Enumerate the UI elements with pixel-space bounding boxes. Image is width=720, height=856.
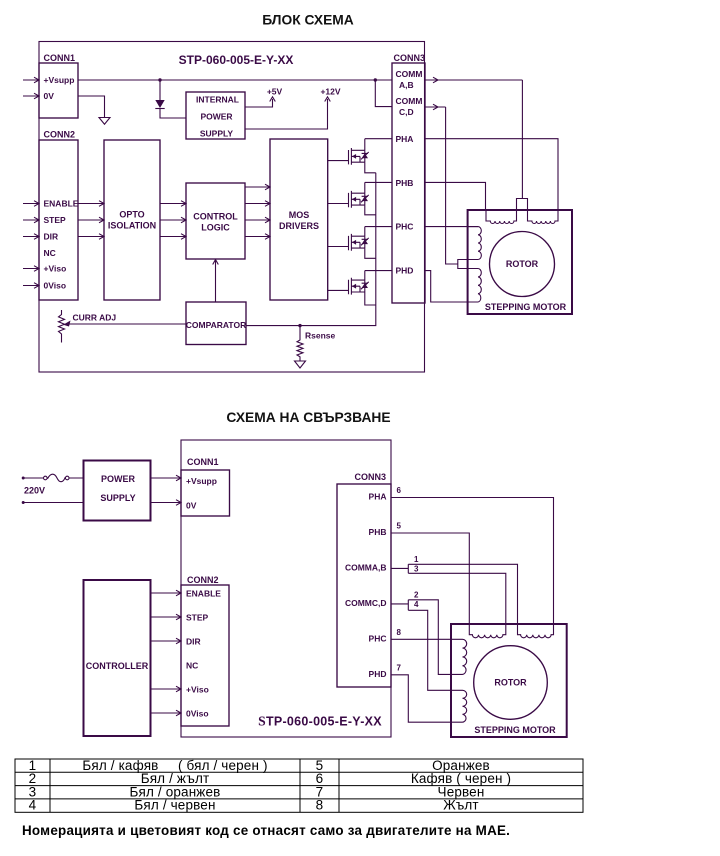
svg-text:CONN3: CONN3: [355, 472, 387, 482]
svg-text:ISOLATION: ISOLATION: [108, 221, 156, 231]
svg-text:A,B: A,B: [399, 80, 414, 90]
svg-text:0V: 0V: [44, 91, 55, 101]
svg-text:STEP: STEP: [44, 215, 67, 225]
svg-text:2: 2: [414, 591, 419, 600]
svg-text:+Viso: +Viso: [186, 685, 209, 695]
svg-text:8: 8: [397, 628, 402, 637]
svg-text:1: 1: [414, 555, 419, 564]
svg-text:SUPPLY: SUPPLY: [200, 129, 234, 139]
svg-text:DIR: DIR: [186, 637, 201, 647]
svg-text:OPTO: OPTO: [119, 210, 144, 220]
svg-text:Номерацията и цветовият код се: Номерацията и цветовият код се отнасят с…: [22, 823, 510, 838]
svg-text:PHC: PHC: [369, 634, 387, 644]
svg-text:0V: 0V: [186, 501, 197, 511]
svg-text:Жълт: Жълт: [443, 798, 479, 813]
svg-text:ROTOR: ROTOR: [506, 259, 539, 269]
svg-text:COMPARATOR: COMPARATOR: [186, 320, 246, 330]
svg-text:7: 7: [397, 664, 402, 673]
svg-text:ENABLE: ENABLE: [186, 589, 221, 599]
svg-text:POWER: POWER: [200, 112, 232, 122]
svg-text:STP-060-005-E-Y-XX: STP-060-005-E-Y-XX: [179, 53, 294, 67]
svg-text:8: 8: [316, 798, 324, 813]
svg-text:+Vsupp: +Vsupp: [186, 476, 217, 486]
svg-text:+5V: +5V: [267, 87, 283, 97]
svg-text:PHB: PHB: [369, 527, 387, 537]
svg-text:CONN1: CONN1: [187, 457, 219, 467]
svg-text:0Viso: 0Viso: [186, 709, 209, 719]
svg-text:220V: 220V: [24, 486, 45, 496]
svg-text:CONTROLLER: CONTROLLER: [86, 661, 149, 671]
svg-text:STP-060-005-E-Y-XX: STP-060-005-E-Y-XX: [258, 714, 382, 729]
svg-text:LOGIC: LOGIC: [201, 223, 230, 233]
svg-text:PHA: PHA: [396, 134, 414, 144]
svg-text:ROTOR: ROTOR: [494, 678, 527, 688]
svg-text:PHD: PHD: [369, 669, 387, 679]
svg-text:NC: NC: [186, 661, 198, 671]
svg-text:6: 6: [397, 486, 402, 495]
svg-text:4: 4: [414, 600, 419, 609]
svg-text:CONN2: CONN2: [187, 575, 219, 585]
svg-text:3: 3: [414, 565, 419, 574]
svg-text:+Viso: +Viso: [44, 264, 67, 274]
svg-text:PHD: PHD: [396, 266, 414, 276]
svg-text:Бял / червен: Бял / червен: [134, 798, 215, 813]
svg-text:SUPPLY: SUPPLY: [100, 493, 135, 503]
svg-text:БЛОК СХЕМА: БЛОК СХЕМА: [262, 13, 354, 28]
svg-text:NC: NC: [44, 248, 56, 258]
svg-text:COMM: COMM: [396, 96, 423, 106]
svg-text:STEPPING MOTOR: STEPPING MOTOR: [474, 725, 556, 735]
svg-text:CONN3: CONN3: [394, 53, 426, 63]
svg-text:ENABLE: ENABLE: [44, 199, 79, 209]
svg-text:CONTROL: CONTROL: [193, 212, 238, 222]
svg-text:PHB: PHB: [396, 178, 414, 188]
svg-text:4: 4: [29, 798, 37, 813]
svg-text:C,D: C,D: [399, 107, 414, 117]
svg-text:СХЕМА НА СВЪРЗВАНЕ: СХЕМА НА СВЪРЗВАНЕ: [226, 410, 390, 425]
svg-text:CONN1: CONN1: [44, 53, 76, 63]
svg-text:STEP: STEP: [186, 613, 209, 623]
svg-text:PHC: PHC: [396, 222, 414, 232]
svg-text:PHA: PHA: [369, 492, 387, 502]
svg-text:DIR: DIR: [44, 232, 59, 242]
svg-text:5: 5: [397, 522, 402, 531]
svg-text:DRIVERS: DRIVERS: [279, 221, 319, 231]
svg-text:CURR ADJ: CURR ADJ: [73, 313, 117, 323]
svg-text:MOS: MOS: [289, 210, 310, 220]
svg-text:COMMC,D: COMMC,D: [345, 598, 387, 608]
svg-text:STEPPING MOTOR: STEPPING MOTOR: [485, 302, 567, 312]
svg-text:Rsense: Rsense: [305, 331, 336, 341]
svg-text:INTERNAL: INTERNAL: [196, 95, 239, 105]
svg-text:COMMA,B: COMMA,B: [345, 563, 387, 573]
svg-text:0Viso: 0Viso: [44, 281, 67, 291]
svg-text:+Vsupp: +Vsupp: [44, 75, 75, 85]
svg-text:+12V: +12V: [320, 87, 340, 97]
svg-text:CONN2: CONN2: [44, 130, 76, 140]
svg-text:COMM: COMM: [396, 69, 423, 79]
svg-text:POWER: POWER: [101, 474, 136, 484]
